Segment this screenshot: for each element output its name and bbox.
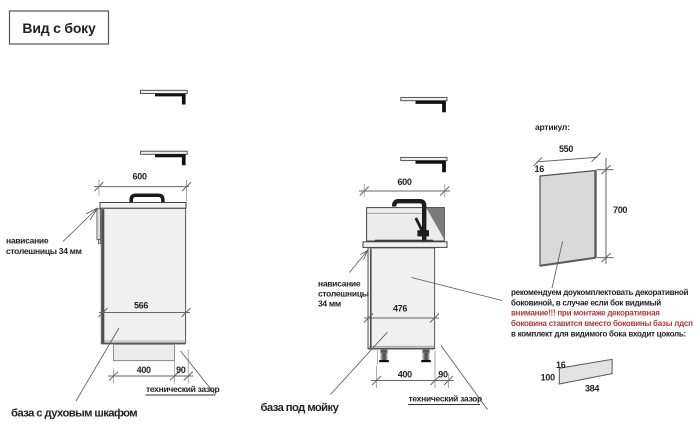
svg-text:боковиной, в случае если бок в: боковиной, в случае если бок видимый	[511, 298, 661, 307]
svg-text:столешницы 34 мм: столешницы 34 мм	[6, 246, 82, 256]
svg-text:артикул:: артикул:	[535, 122, 570, 132]
svg-text:600: 600	[133, 172, 147, 182]
svg-text:Вид с боку: Вид с боку	[22, 20, 96, 36]
svg-text:16: 16	[556, 360, 566, 370]
svg-text:рекомендуем доукомплектовать д: рекомендуем доукомплектовать декоративно…	[511, 288, 689, 297]
svg-text:400: 400	[398, 370, 412, 380]
svg-text:внимание!!! при монтаже декора: внимание!!! при монтаже декоративная	[511, 309, 660, 318]
svg-text:база под мойку: база под мойку	[261, 402, 340, 414]
svg-text:34 мм: 34 мм	[318, 299, 341, 309]
svg-text:550: 550	[559, 144, 573, 154]
svg-text:база с духовым шкафом: база с духовым шкафом	[11, 408, 137, 420]
svg-text:в комплект для видимого бока в: в комплект для видимого бока входит цоко…	[511, 329, 686, 338]
svg-text:нависание: нависание	[318, 279, 361, 289]
svg-text:566: 566	[134, 301, 148, 311]
svg-text:технический зазор: технический зазор	[409, 394, 483, 404]
svg-text:400: 400	[137, 365, 151, 375]
svg-text:384: 384	[585, 384, 599, 394]
svg-text:столешницы: столешницы	[318, 289, 369, 299]
svg-text:нависание: нависание	[6, 236, 49, 246]
svg-text:100: 100	[541, 373, 555, 383]
svg-text:600: 600	[397, 177, 411, 187]
svg-text:700: 700	[613, 205, 627, 215]
svg-text:90: 90	[438, 370, 448, 380]
svg-text:90: 90	[176, 365, 186, 375]
svg-text:476: 476	[393, 304, 407, 314]
svg-text:16: 16	[535, 164, 545, 174]
svg-text:боковина ставится вместо боков: боковина ставится вместо боковины базы л…	[511, 319, 693, 328]
